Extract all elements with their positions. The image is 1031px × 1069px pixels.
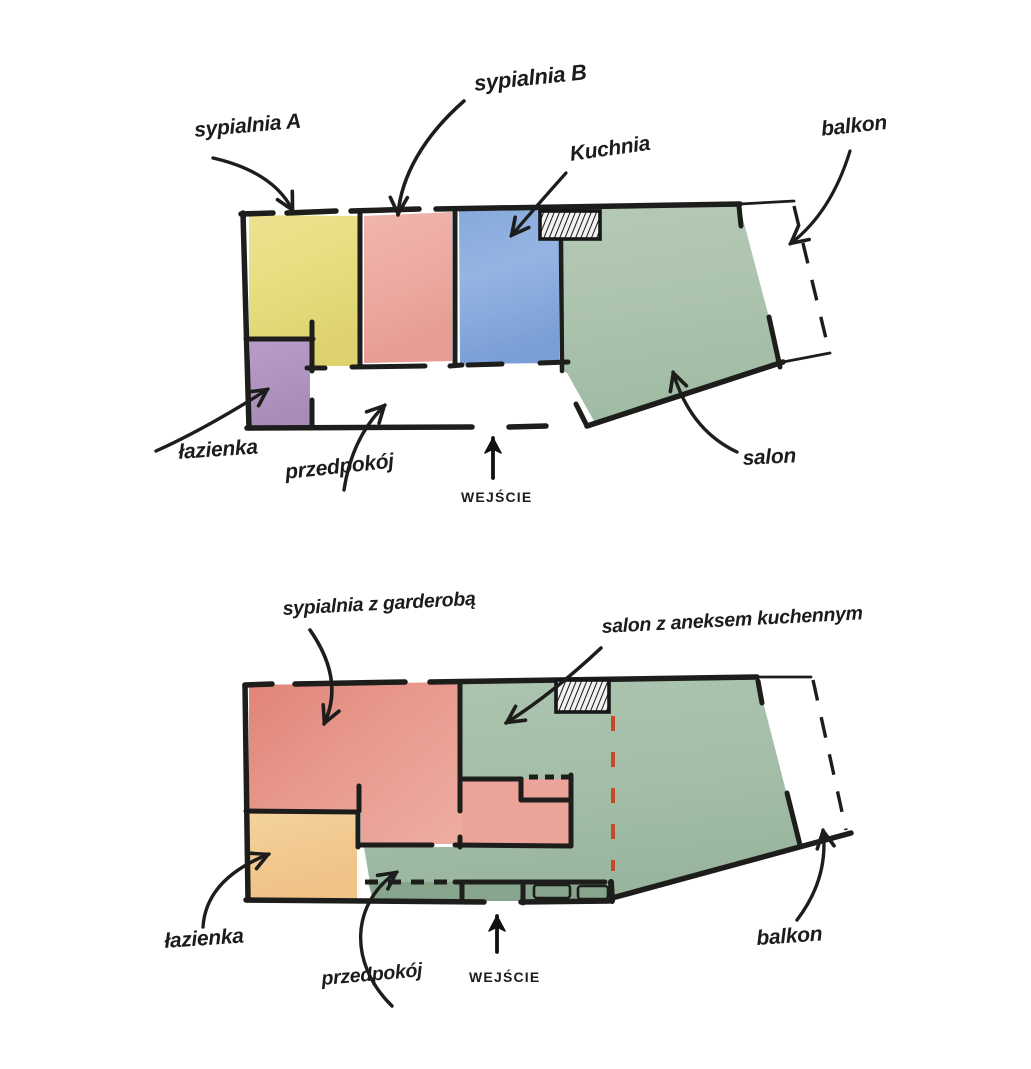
svg-text:WEJŚCIE: WEJŚCIE (469, 968, 540, 985)
svg-text:balkon: balkon (756, 922, 823, 950)
svg-text:WEJŚCIE: WEJŚCIE (461, 488, 532, 505)
svg-text:salon: salon (742, 444, 796, 470)
